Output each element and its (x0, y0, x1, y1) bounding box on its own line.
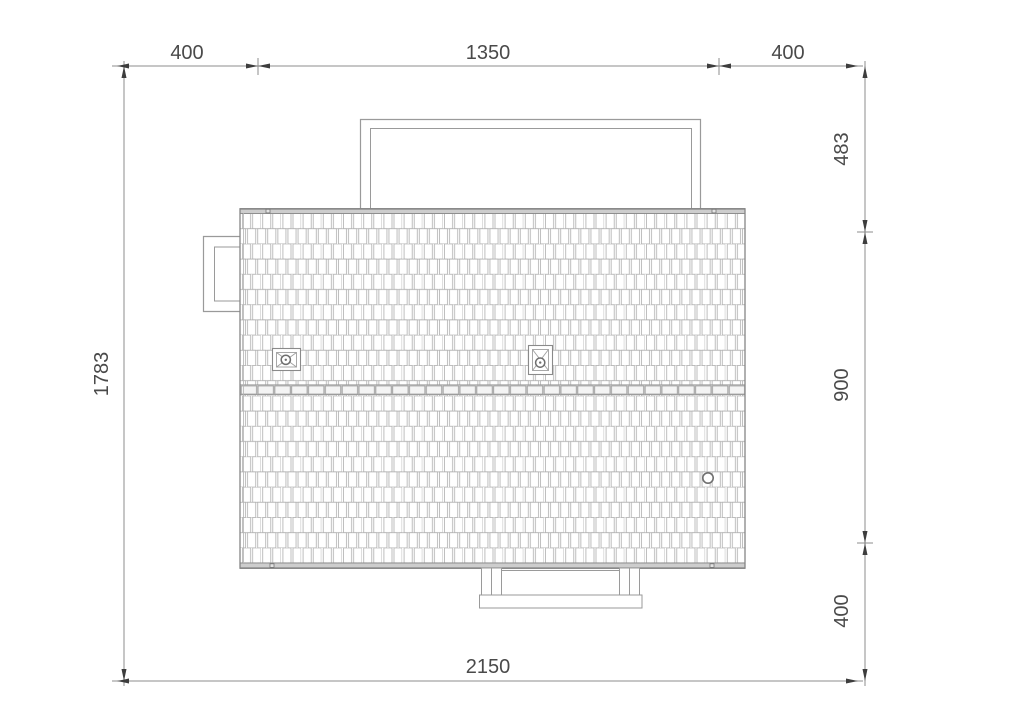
top-porch-inner (371, 129, 692, 210)
edge-marker-bottom-right (710, 564, 714, 568)
left-dormer-outline (204, 237, 242, 312)
dim-label-top-mid: 1350 (466, 42, 511, 64)
dim-label-right-mid: 900 (831, 368, 853, 401)
dim-label-left: 1783 (91, 352, 113, 397)
dim-label-top-left: 400 (170, 42, 203, 64)
edge-marker-bottom-left (270, 564, 274, 568)
left-dormer-inner (215, 247, 242, 301)
dim-label-right-bottom: 400 (831, 594, 853, 627)
dim-label-top-right: 400 (771, 42, 804, 64)
main-roof (240, 209, 745, 569)
roof-tiles-upper (241, 214, 745, 385)
dim-label-bottom: 2150 (466, 656, 511, 678)
edge-marker-top-right (712, 209, 716, 213)
roof-tiles-lower (241, 395, 745, 563)
edge-marker-top-left (266, 209, 270, 213)
roof-vent-1 (273, 349, 301, 371)
vent-1-center-dot (285, 359, 287, 361)
pipe-penetration (703, 473, 713, 483)
roof-plan-drawing: 400 1350 400 2150 1783 483 900 400 (0, 0, 1024, 724)
dim-label-right-top: 483 (831, 132, 853, 165)
roof-plan-page: 400 1350 400 2150 1783 483 900 400 (0, 0, 1024, 724)
vent-2-center-dot (539, 361, 541, 363)
ridge-cap (240, 385, 745, 395)
bottom-porch (480, 568, 643, 608)
bottom-porch-slab (480, 595, 643, 608)
top-porch-outline (361, 120, 701, 210)
roof-vent-2 (529, 346, 553, 375)
